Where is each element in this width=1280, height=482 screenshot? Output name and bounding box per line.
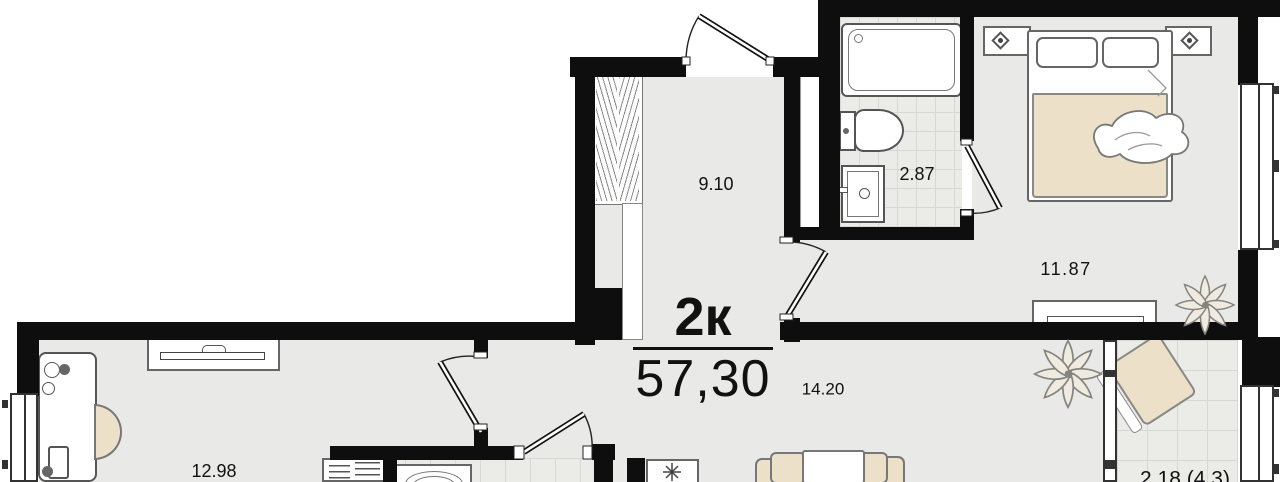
unit-type-label: 2к (623, 290, 783, 344)
room-area-balcony: 2.18 (4.3) (1140, 469, 1230, 482)
room-area-living: 12.98 (191, 462, 236, 480)
snowflake-icon (663, 463, 681, 481)
decor-layer (0, 0, 1280, 482)
door-entrance (682, 16, 774, 65)
room-area-bathroom: 2.87 (899, 165, 934, 183)
unit-summary: 2к 57,30 (623, 290, 783, 407)
door-bathroom (961, 139, 1000, 216)
door-living (440, 352, 487, 432)
room-area-hallway: 9.10 (698, 175, 733, 193)
bed-throw (1094, 111, 1188, 163)
room-area-kitchen-living: 14.20 (802, 381, 845, 398)
unit-total-area: 57,30 (623, 352, 783, 407)
plant-icon-2 (1035, 341, 1102, 408)
door-bedroom (780, 237, 826, 320)
sheet-fold (1148, 70, 1166, 96)
plant-icon (1176, 276, 1234, 334)
door-kitchen (514, 414, 592, 459)
room-area-bedroom: 11.87 (1040, 260, 1091, 278)
floor-plan: 2к 57,30 9.10 2.87 11.87 14.20 12.98 2.1… (0, 0, 1280, 482)
